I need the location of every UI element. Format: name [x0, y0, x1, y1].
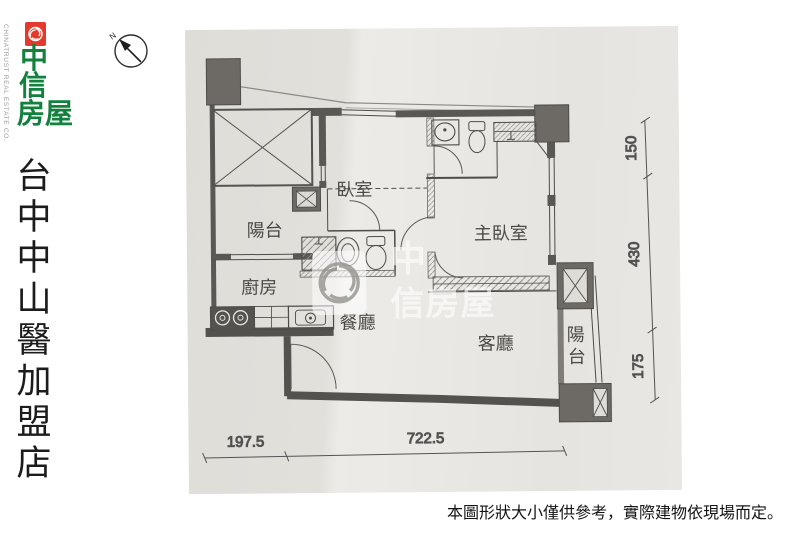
store-name-char: 中 [12, 239, 56, 280]
floor-plan-photo: 150 430 175 197.5 722.5 臥室 主臥室 陽台 廚房 餐廳 … [185, 26, 682, 494]
dim-150: 150 [623, 136, 640, 161]
store-name-char: 中 [12, 198, 56, 239]
store-name-char: 台 [12, 157, 56, 198]
dim-197-5: 197.5 [227, 433, 265, 450]
room-label-dining: 餐廳 [339, 313, 375, 333]
room-label-kitchen: 廚房 [241, 276, 277, 297]
small-x-column [292, 187, 320, 211]
dim-175: 175 [630, 354, 647, 379]
logo-text-row-3: 房屋 [17, 100, 81, 128]
watermark-char-top: 中 [390, 238, 426, 279]
compass-north-label: N [108, 31, 118, 42]
room-label-balcony-right-char2: 台 [568, 347, 586, 367]
room-label-living: 客廳 [478, 333, 514, 353]
logo-text-row-1: 中 [20, 45, 84, 73]
bottom-right-column [559, 383, 611, 421]
disclaimer-text: 本圖形狀大小僅供參考，實際建物依現場而定。 [447, 499, 787, 523]
store-name: 台 中 中 山 醫 加 盟 店 [12, 157, 56, 485]
right-x-column [557, 263, 593, 309]
store-name-char: 盟 [12, 403, 56, 444]
dim-722-5: 722.5 [407, 430, 445, 447]
room-label-bedroom: 臥室 [336, 180, 372, 200]
dimension-right: 150 430 175 [623, 117, 659, 403]
room-label-master-bedroom: 主臥室 [474, 223, 528, 243]
watermark-row-bottom: 信房屋 [390, 284, 495, 323]
room-label-balcony-left: 陽台 [247, 220, 283, 240]
room-label-balcony-right-char1: 陽 [567, 325, 585, 345]
dimension-bottom: 197.5 722.5 [202, 429, 566, 463]
logo-text-row-2: 信 [19, 72, 83, 100]
store-name-char: 醫 [12, 321, 56, 362]
company-tagline: CHINATRUST REAL ESTATE CO. [2, 24, 9, 142]
store-name-char: 加 [12, 362, 56, 403]
store-name-char: 山 [12, 280, 56, 321]
store-name-char: 店 [12, 444, 56, 485]
compass-icon: N [106, 26, 156, 76]
bathroom-top-fixtures [432, 119, 536, 153]
dim-430: 430 [626, 242, 643, 267]
sidebar: CHINATRUST REAL ESTATE CO. 中 信 房屋 台 中 中 … [0, 0, 110, 553]
shaft-x-box [213, 109, 313, 186]
